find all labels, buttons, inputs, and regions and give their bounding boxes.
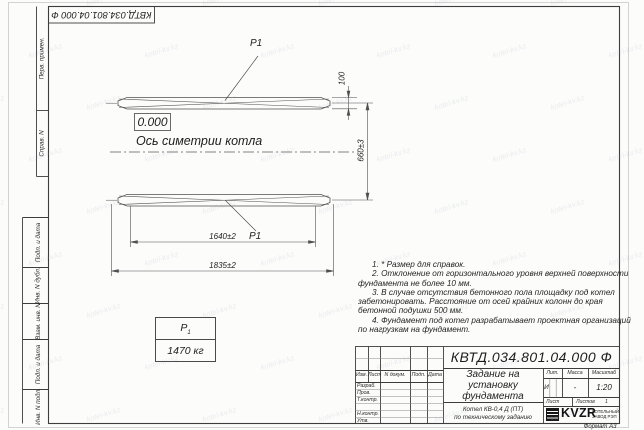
margin-label-podp-data-2: Подп. и дата: [29, 339, 48, 389]
p1-label-bottom: P1: [249, 231, 261, 242]
load-value: 1470 кг: [156, 340, 215, 363]
lit-label: Лит.: [543, 371, 562, 376]
doc-number: КВТД.034.801.04.000 Ф: [443, 346, 620, 368]
leader-p1-bottom: [225, 200, 256, 231]
notes-block: 1. * Размер для справок. 2. Отклонение о…: [358, 260, 634, 334]
kvzr-logo-sub2: ЗАВОД РЭП: [592, 414, 619, 419]
mass-label: Масса: [562, 371, 588, 376]
row-n-kontr: Н.контр.: [357, 412, 379, 417]
leader-p1-top: [225, 56, 258, 101]
col-izm: Изм.: [355, 373, 368, 378]
p1-label-top: P1: [250, 38, 262, 49]
margin-label-vzam-inv: Взам. инв. N: [29, 303, 48, 339]
margin-label-inv-podl: Инв. N подл.: [29, 389, 48, 424]
drawing-sheet: КВТД.034.801.04.000 Ф Перв. примен. Спра…: [0, 0, 644, 430]
margin-label-inv-dubl: Инв. N дубл.: [29, 267, 48, 303]
doc-title-line3: фундамента: [443, 391, 543, 402]
row-t-kontr: Т.контр.: [357, 398, 378, 403]
beam-top: [106, 98, 330, 110]
note-3: 3. В случае отсутствия бетонного пола пл…: [358, 288, 634, 316]
col-n-dokum: N докум.: [380, 373, 410, 378]
note-4: 4. Фундамент под котел разрабатывает про…: [358, 316, 634, 335]
margin-label-sprav-n: Справ. N: [36, 110, 48, 177]
note-1: 1. * Размер для справок.: [358, 260, 634, 269]
margin-label-perv-primen: Перв. примен.: [36, 6, 48, 110]
doc-subtitle-line2: по техническому заданию: [443, 414, 543, 422]
stamp-rotated-doc-number: КВТД.034.801.04.000 Ф: [48, 6, 155, 23]
scale-label: Масштаб: [588, 371, 620, 376]
sheets-value: 1: [605, 400, 608, 405]
row-utv: Утв.: [357, 419, 369, 424]
lit-value: И: [543, 378, 550, 397]
col-list: Лист: [368, 373, 380, 378]
row-prov: Пров.: [357, 391, 371, 396]
sheet-label: Лист: [546, 400, 559, 405]
kvzr-logo-icon: [546, 408, 559, 421]
kvzr-logo-subtext: КОТЕЛЬНЫЙ ЗАВОД РЭП: [592, 409, 619, 419]
dim-text-1835: 1835±2: [196, 261, 249, 270]
note-2: 2. Отклонение от горизонтального уровня …: [358, 269, 634, 288]
elevation-mark: 0.000: [134, 113, 171, 131]
scale-value: 1:20: [588, 378, 620, 397]
load-symbol: Р1: [156, 318, 215, 340]
beam-bottom: [106, 195, 330, 207]
dim-text-1640: 1640±2: [196, 232, 249, 241]
dim-text-100: 100: [338, 64, 347, 94]
sheets-label: Листов: [576, 400, 595, 405]
doc-subtitle-line1: Котел КВ-0,4 Д (ПТ): [443, 406, 543, 414]
kvzr-logo-text: KVZR: [561, 406, 596, 420]
format-label: Формат А3: [580, 424, 620, 430]
col-podp: Подп.: [410, 373, 427, 378]
dim-660: [332, 103, 373, 200]
doc-title: Задание на установку фундамента: [443, 369, 543, 402]
col-data: Дата: [427, 373, 443, 378]
margin-label-podp-data-1: Подп. и дата: [29, 217, 48, 267]
doc-subtitle: Котел КВ-0,4 Д (ПТ) по техническому зада…: [443, 406, 543, 421]
mass-value: -: [562, 378, 588, 397]
symmetry-axis-label: Ось симетрии котла: [136, 134, 262, 148]
load-table: Р1 1470 кг: [155, 317, 216, 362]
doc-title-line1: Задание на: [443, 369, 543, 380]
row-razrab: Разраб.: [357, 384, 376, 389]
dim-text-660: 660±3: [357, 134, 366, 168]
doc-title-line2: установку: [443, 380, 543, 391]
